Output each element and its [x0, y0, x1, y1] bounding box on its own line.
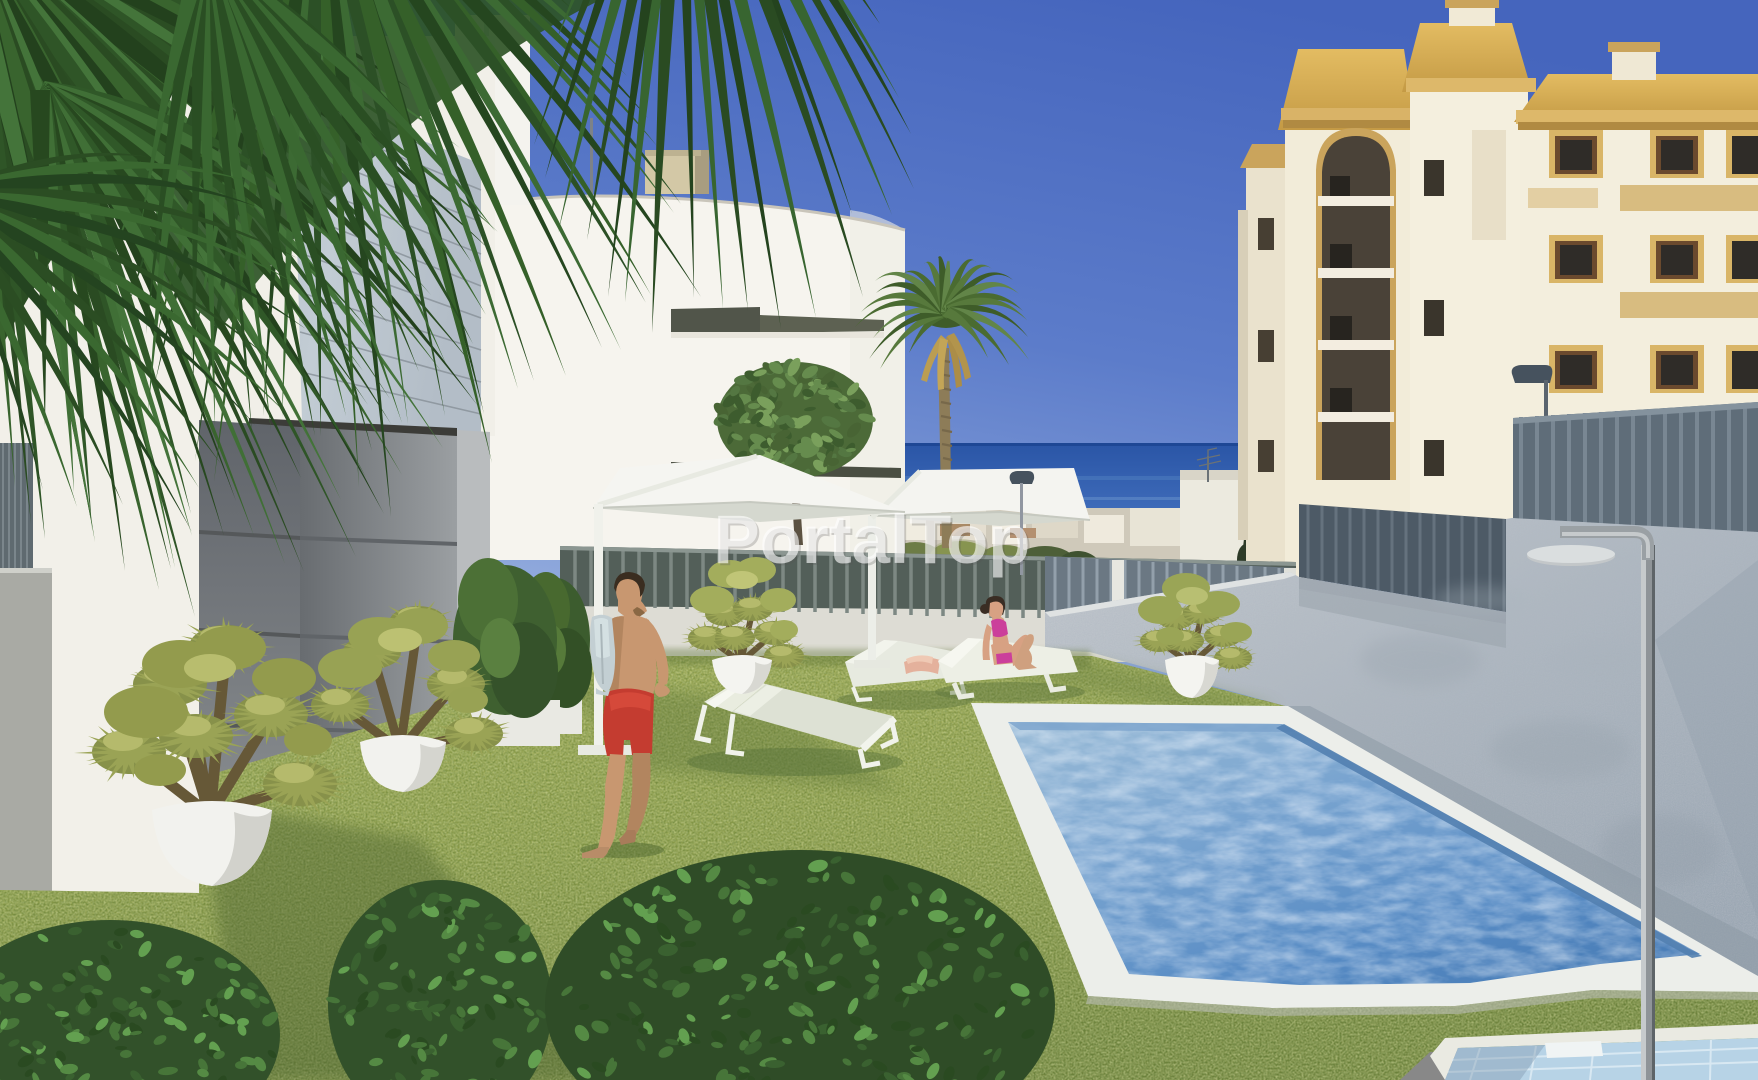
svg-text:PortalTop: PortalTop — [714, 501, 1031, 578]
